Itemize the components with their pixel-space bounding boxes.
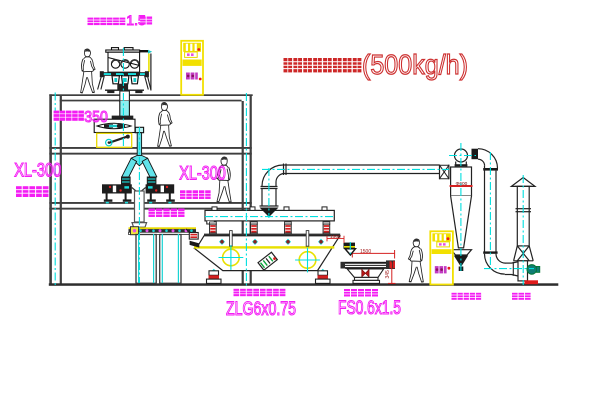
svg-text:345: 345 [385,270,391,279]
svg-text:1500: 1500 [330,234,341,240]
svg-text:XL-300: XL-300 [179,163,226,185]
svg-text:XL-300: XL-300 [14,160,61,182]
svg-text:(500kg/h): (500kg/h) [362,49,468,80]
svg-text:Φ600: Φ600 [456,181,468,187]
svg-text:FS0.6x1.5: FS0.6x1.5 [338,298,401,319]
svg-text:1500: 1500 [360,249,371,255]
svg-text:350: 350 [84,109,108,126]
svg-text:ZLG6x0.75: ZLG6x0.75 [226,299,296,320]
